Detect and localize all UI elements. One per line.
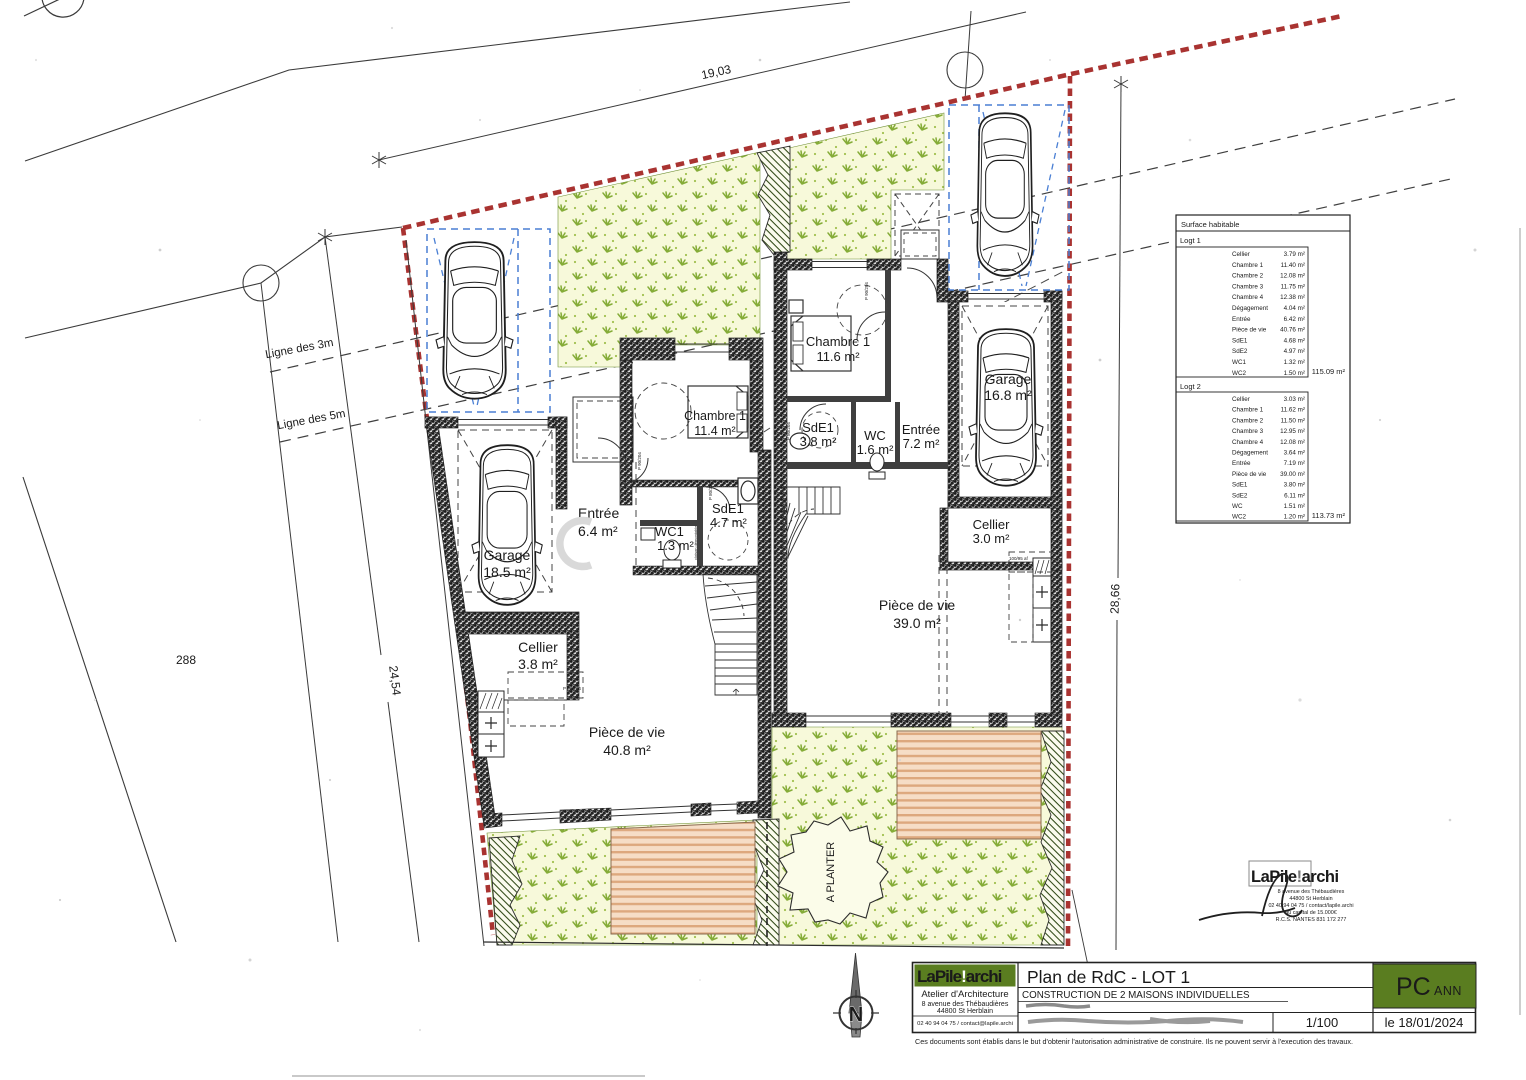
svg-text:11.50 m²: 11.50 m² <box>1281 417 1305 424</box>
svg-text:SdE1: SdE1 <box>1232 337 1248 344</box>
svg-text:Logt 1: Logt 1 <box>1180 236 1201 245</box>
svg-text:Chambre 2: Chambre 2 <box>1232 417 1264 424</box>
svg-text:3.03 m²: 3.03 m² <box>1284 396 1305 403</box>
svg-text:Cellier: Cellier <box>1232 251 1250 258</box>
svg-text:Cellier: Cellier <box>1232 396 1250 403</box>
svg-text:Chambre 1: Chambre 1 <box>1232 262 1264 269</box>
svg-text:Chambre 2: Chambre 2 <box>1232 273 1264 280</box>
svg-text:44800 St Herblain: 44800 St Herblain <box>1289 896 1332 902</box>
svg-text:3.79 m²: 3.79 m² <box>1284 251 1305 258</box>
svg-text:SdE14.7 m²: SdE14.7 m² <box>710 501 748 530</box>
svg-text:11.75 m²: 11.75 m² <box>1281 283 1305 290</box>
svg-text:PC: PC <box>1396 973 1431 1001</box>
svg-text:WC2: WC2 <box>1232 514 1246 521</box>
svg-text:N: N <box>849 1004 863 1026</box>
svg-text:39.00 m²: 39.00 m² <box>1280 471 1305 478</box>
svg-text:8 avenue des Thébaudières: 8 avenue des Thébaudières <box>1278 889 1345 895</box>
svg-text:Garage18.5 m²: Garage18.5 m² <box>483 547 531 580</box>
svg-text:28,66: 28,66 <box>1107 583 1122 614</box>
svg-text:SdE2: SdE2 <box>1232 348 1248 355</box>
svg-text:P 90/204: P 90/204 <box>864 282 869 300</box>
svg-text:3.64 m²: 3.64 m² <box>1284 450 1305 457</box>
svg-text:12.38 m²: 12.38 m² <box>1280 294 1305 301</box>
svg-text:CONSTRUCTION DE 2 MAISONS INDI: CONSTRUCTION DE 2 MAISONS INDIVIDUELLES <box>1022 990 1250 1001</box>
svg-text:P 90/204: P 90/204 <box>637 452 642 470</box>
svg-text:ANN: ANN <box>1434 984 1462 998</box>
svg-text:Logt 2: Logt 2 <box>1180 382 1201 391</box>
svg-text:Entrée: Entrée <box>1232 316 1251 323</box>
svg-text:LaPile!archi: LaPile!archi <box>917 967 1002 986</box>
svg-text:1.20 m²: 1.20 m² <box>1284 514 1305 521</box>
svg-text:Chambre 4: Chambre 4 <box>1232 294 1264 301</box>
svg-text:4.97 m²: 4.97 m² <box>1284 348 1305 355</box>
svg-text:1.50 m²: 1.50 m² <box>1284 370 1305 377</box>
svg-text:12.95 m²: 12.95 m² <box>1280 428 1305 435</box>
svg-text:1.51 m²: 1.51 m² <box>1284 503 1305 510</box>
svg-text:Surface habitable: Surface habitable <box>1181 220 1239 229</box>
svg-text:1/100: 1/100 <box>1306 1015 1339 1030</box>
svg-text:Garage16.8 m²: Garage16.8 m² <box>984 371 1032 403</box>
svg-text:SdE2: SdE2 <box>1232 492 1248 499</box>
svg-text:12.08 m²: 12.08 m² <box>1280 439 1305 446</box>
svg-text:Atelier d'Architecture: Atelier d'Architecture <box>921 989 1008 1000</box>
svg-text:Ces documents sont établis dan: Ces documents sont établis dans le but d… <box>915 1037 1353 1046</box>
svg-text:6.42 m²: 6.42 m² <box>1284 316 1305 323</box>
svg-text:Entrée7.2 m²: Entrée7.2 m² <box>902 422 940 451</box>
svg-text:1.32 m²: 1.32 m² <box>1284 359 1305 366</box>
svg-text:6.11 m²: 6.11 m² <box>1284 492 1305 499</box>
svg-text:SdE13.8 m²: SdE13.8 m² <box>800 420 838 449</box>
svg-text:4.68 m²: 4.68 m² <box>1284 337 1305 344</box>
svg-text:WC: WC <box>1232 503 1243 510</box>
svg-text:12.08 m²: 12.08 m² <box>1280 273 1305 280</box>
svg-text:LaPile!archi: LaPile!archi <box>1251 868 1339 886</box>
svg-text:le 18/01/2024: le 18/01/2024 <box>1385 1015 1464 1030</box>
svg-text:Cellier3.8 m²: Cellier3.8 m² <box>518 639 558 672</box>
svg-text:Chambre 1: Chambre 1 <box>1232 407 1264 414</box>
svg-text:A PLANTER: A PLANTER <box>825 842 837 903</box>
svg-text:P 80/204: P 80/204 <box>786 422 791 440</box>
svg-text:WC2: WC2 <box>1232 370 1246 377</box>
svg-text:44800 St Herblain: 44800 St Herblain <box>937 1008 993 1015</box>
svg-text:Pièce de vie: Pièce de vie <box>1232 327 1267 334</box>
svg-text:288: 288 <box>176 653 196 667</box>
svg-text:cloison démontable: cloison démontable <box>693 525 698 560</box>
svg-text:40.76 m²: 40.76 m² <box>1280 327 1305 334</box>
svg-text:Chambre 3: Chambre 3 <box>1232 283 1264 290</box>
svg-text:P 80/204: P 80/204 <box>708 482 713 500</box>
svg-text:Chambre 3: Chambre 3 <box>1232 428 1264 435</box>
svg-text:11.40 m²: 11.40 m² <box>1281 262 1305 269</box>
svg-text:Dégagement: Dégagement <box>1232 450 1268 457</box>
svg-text:115.09 m²: 115.09 m² <box>1312 367 1346 376</box>
svg-text:SdE1: SdE1 <box>1232 482 1248 489</box>
svg-text:Entrée: Entrée <box>1232 460 1251 467</box>
svg-text:WC1: WC1 <box>1232 359 1246 366</box>
svg-text:Pièce de vie: Pièce de vie <box>1232 471 1267 478</box>
svg-text:4.04 m²: 4.04 m² <box>1284 305 1305 312</box>
svg-text:113.73 m²: 113.73 m² <box>1312 511 1346 520</box>
svg-text:Cellier3.0 m²: Cellier3.0 m² <box>973 517 1011 546</box>
svg-text:Chambre 4: Chambre 4 <box>1232 439 1264 446</box>
svg-text:Plan de RdC - LOT 1: Plan de RdC - LOT 1 <box>1027 967 1190 987</box>
svg-text:P 80/204: P 80/204 <box>563 686 581 691</box>
svg-text:100/95 af: 100/95 af <box>1009 556 1029 561</box>
svg-text:Dégagement: Dégagement <box>1232 305 1268 312</box>
svg-text:11.62 m²: 11.62 m² <box>1281 407 1305 414</box>
svg-text:3.80 m²: 3.80 m² <box>1284 482 1305 489</box>
svg-text:au capital de 15.000€: au capital de 15.000€ <box>1285 910 1337 916</box>
svg-text:7.19 m²: 7.19 m² <box>1284 460 1305 467</box>
svg-text:8 avenue des Thébaudières: 8 avenue des Thébaudières <box>922 1001 1009 1008</box>
svg-text:02 40 94 04 75 / contact@lapil: 02 40 94 04 75 / contact@lapile.archi <box>917 1021 1013 1027</box>
svg-text:R.C.S. NANTES 831 172 277: R.C.S. NANTES 831 172 277 <box>1276 917 1347 923</box>
